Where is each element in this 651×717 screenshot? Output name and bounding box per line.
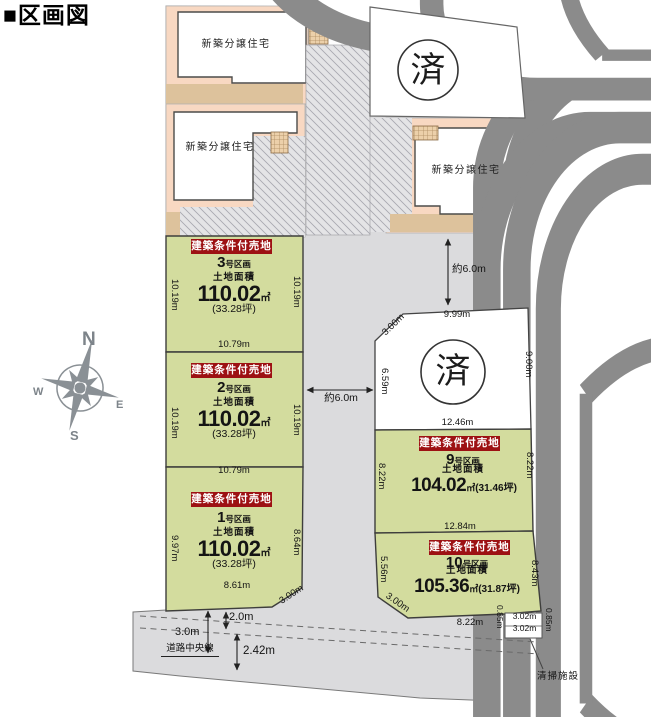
lot1-number: 1号区画 [199, 509, 269, 526]
lot3-badge: 建築条件付売地 [191, 239, 272, 254]
compass-south-label: S [70, 428, 79, 443]
lot9-area-unit: ㎡ [466, 483, 475, 493]
page-title: ■区画図 [3, 2, 90, 28]
lot-map-page: ■区画図 新築分譲住宅 新築分譲住宅 新築分譲住宅 済 済 建築条件付売地 3号… [0, 0, 651, 717]
lot1-dim-left: 9.97m [168, 535, 179, 561]
lot2-tsubo: (33.28坪) [184, 428, 284, 440]
lot9-tsubo: (31.46坪) [475, 483, 517, 494]
facility-dim-w1: 3.02m [507, 612, 542, 622]
road-centerline-label: 道路中央線 [161, 644, 219, 657]
lot2-dim-bottom: 10.79m [204, 466, 264, 477]
road-offset-c: 2.42m [243, 645, 275, 658]
compass-east-label: E [116, 399, 123, 411]
compass-west-label: W [33, 386, 43, 398]
lot10-dim-bottom: 8.22m [445, 618, 495, 629]
lot1-dim-bottom: 8.61m [207, 581, 267, 592]
lot3-tsubo: (33.28坪) [184, 303, 284, 315]
lot3-dim-bottom: 10.79m [204, 340, 264, 351]
sold-mid-dim-left: 6.59m [378, 368, 389, 394]
road-offset-b: 3.0m [175, 626, 199, 639]
facility-dim-d2: 0.85m [543, 608, 553, 632]
lot9-area: 104.02㎡(31.46坪) [398, 475, 530, 497]
lot2-dim-right: 10.19m [290, 404, 301, 436]
building-c-label: 新築分譲住宅 [420, 165, 512, 177]
porch-grid-b [271, 132, 288, 153]
facility-dim-d1: 0.85m [494, 605, 504, 629]
sold-mid-dim-right: 9.00m [522, 351, 533, 377]
lot9-dim-right: 8.22m [523, 452, 534, 478]
sold-mid-dim-top: 9.99m [432, 310, 482, 321]
sold-mark-top: 済 [408, 51, 448, 91]
lot10-area-unit: ㎡ [469, 584, 478, 594]
lot10-area-value: 105.36 [414, 576, 469, 597]
lot1-num-suffix: 号区画 [225, 514, 251, 524]
lot1-dim-right: 8.64m [290, 529, 301, 555]
lot10-badge: 建築条件付売地 [429, 540, 510, 555]
building-b-label: 新築分譲住宅 [174, 142, 266, 154]
facility-dim-w2: 3.02m [507, 624, 542, 634]
lot10-dim-left: 5.56m [377, 556, 388, 582]
lot1-tsubo: (33.28坪) [184, 558, 284, 570]
lot2-badge: 建築条件付売地 [191, 363, 272, 378]
lot3-num-suffix: 号区画 [225, 259, 251, 269]
sold-mark-middle: 済 [433, 352, 473, 392]
building-lot-a [166, 6, 308, 104]
road-offset-a: 2.0m [229, 611, 253, 624]
lot9-dim-left: 8.22m [375, 463, 386, 489]
road-width-front: 約6.0m [314, 392, 368, 404]
car-icon [548, 169, 651, 717]
building-lot-b [166, 104, 305, 237]
lot10-dim-right: 8.43m [528, 560, 539, 586]
porch-grid-c [413, 126, 438, 140]
compass-rose-icon [31, 330, 131, 441]
lot2-num-suffix: 号区画 [225, 384, 251, 394]
lot10-tsubo: (31.87坪) [478, 584, 520, 595]
lot10-dim-top: 12.84m [430, 522, 490, 533]
lot10-area: 105.36㎡(31.87坪) [396, 576, 538, 598]
lot3-dim-right: 10.19m [290, 276, 301, 308]
compass-north-label: N [82, 329, 96, 351]
lot2-dim-left: 10.19m [168, 407, 179, 439]
road-width-side: 約6.0m [452, 263, 486, 275]
lot2-number: 2号区画 [199, 379, 269, 396]
lot1-badge: 建築条件付売地 [191, 492, 272, 507]
lot9-dim-top: 12.46m [430, 418, 485, 429]
facility-label: 清掃施設 [526, 672, 590, 683]
lot9-badge: 建築条件付売地 [419, 436, 500, 451]
lot3-dim-left: 10.19m [168, 279, 179, 311]
lot9-area-value: 104.02 [411, 475, 466, 496]
building-a-label: 新築分譲住宅 [190, 39, 282, 51]
lot3-number: 3号区画 [199, 254, 269, 271]
